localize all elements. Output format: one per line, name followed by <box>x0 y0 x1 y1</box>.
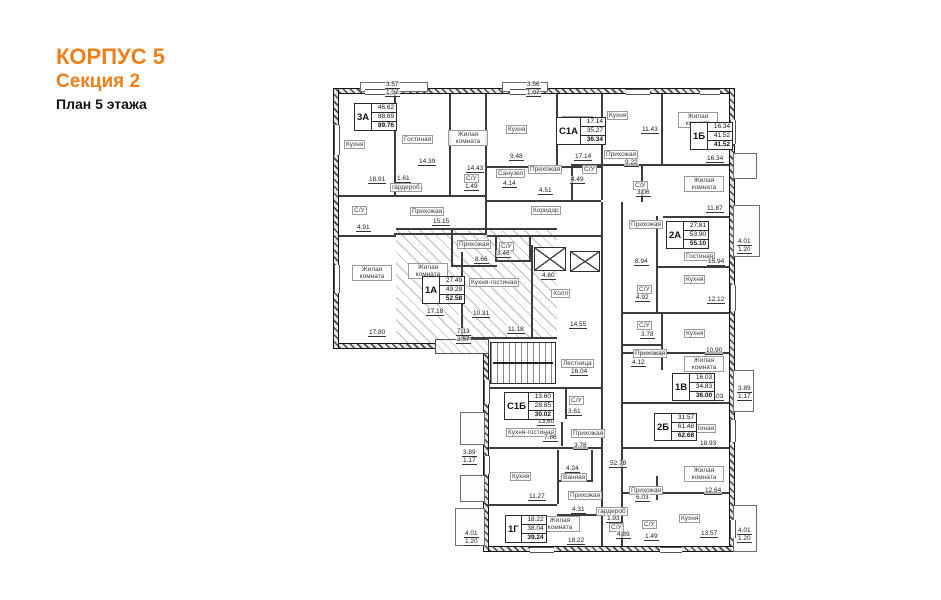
apartment-area-value: 17.14 <box>581 118 605 127</box>
room-area-dim: 3.06 <box>636 189 651 197</box>
interior-wall <box>661 314 663 370</box>
window <box>730 420 736 442</box>
dimension-label: 10.31 <box>472 310 490 318</box>
dimension-label: 3.56 <box>526 81 541 89</box>
apartment-code: 1А <box>423 277 440 303</box>
dimension-label: 1.17 <box>737 393 752 401</box>
stairs <box>490 342 556 384</box>
interior-wall <box>591 450 593 480</box>
interior-wall <box>656 216 658 312</box>
interior-wall <box>601 94 603 200</box>
room-area-dim: 11.43 <box>641 126 659 134</box>
room-area-dim: 13.57 <box>700 530 718 538</box>
room-label: С/У <box>569 396 584 405</box>
apartment-stamp: 2А27.8153.9055.10 <box>666 221 709 249</box>
room-label: Кухня-гостиная <box>469 278 519 287</box>
window <box>626 89 650 95</box>
dimension-label: 52.78 <box>609 460 627 468</box>
apartment-area-value: 61.48 <box>672 423 696 432</box>
apartment-area-value: 39.24 <box>522 534 546 542</box>
window <box>484 456 490 474</box>
room-area-dim: 1.93 <box>606 515 621 523</box>
room-area-dim: 4.14 <box>502 180 517 188</box>
apartment-area-value: 16.03 <box>690 374 714 383</box>
room-area-dim: 7.86 <box>543 434 558 442</box>
room-label: Жилая комната <box>352 265 392 281</box>
room-area-dim: 16.04 <box>570 368 588 376</box>
apartment-areas: 17.1435.2736.34 <box>581 118 605 144</box>
room-area-dim: 4.49 <box>570 176 585 184</box>
dimension-label: 4.01 <box>464 530 479 538</box>
window <box>530 547 554 553</box>
floor-title: План 5 этажа <box>56 94 165 114</box>
window <box>334 265 340 293</box>
room-label: Кухня <box>607 111 628 120</box>
dimension-label: 1.20 <box>737 246 752 254</box>
interior-wall <box>487 387 601 389</box>
interior-wall <box>661 94 663 164</box>
apartment-area-value: 49.29 <box>440 286 464 295</box>
dimension-label: 4.60 <box>541 272 556 280</box>
apartment-area-value: 18.22 <box>522 516 546 525</box>
room-label: Кухня <box>684 275 705 284</box>
room-label: Кухня <box>344 140 365 149</box>
apartment-stamp: С1Б13.6028.8530.02 <box>504 392 554 420</box>
dimension-label: 1.17 <box>462 457 477 465</box>
apartment-area-value: 89.76 <box>372 122 396 130</box>
room-area-dim: 10.90 <box>705 347 723 355</box>
stairs-rail <box>493 362 553 364</box>
room-area-dim: 3.78 <box>640 331 655 339</box>
balcony <box>460 412 485 445</box>
room-label: Прихожая <box>604 150 638 159</box>
interior-wall <box>623 344 661 346</box>
room-label: Лестница <box>561 359 594 368</box>
exterior-wall <box>483 546 735 552</box>
window <box>700 89 720 95</box>
apartment-code: 1В <box>673 374 690 400</box>
apartment-area-value: 28.85 <box>529 402 553 411</box>
dimension-label: 4.01 <box>737 238 752 246</box>
dimension-label: 1.07 <box>526 89 541 97</box>
apartment-areas: 27.8153.9055.10 <box>684 222 708 248</box>
room-area-dim: 4.51 <box>538 187 553 195</box>
dimension-label: 3.57 <box>385 81 400 89</box>
room-label: Прихожая <box>633 349 667 358</box>
room-area-dim: 1.49 <box>644 533 659 541</box>
room-label: гардероб <box>390 183 422 192</box>
dimension-label: 7.13 <box>456 328 471 336</box>
room-area-dim: 3.61 <box>567 408 582 416</box>
apartment-areas: 13.6028.8530.02 <box>529 393 553 419</box>
interior-wall <box>339 235 396 237</box>
apartment-stamp: 1Б16.3441.5241.52 <box>690 122 733 150</box>
room-area-dim: 18.22 <box>567 537 585 545</box>
room-area-dim: 14.55 <box>569 321 587 329</box>
apartment-areas: 16.3441.5241.52 <box>708 123 732 149</box>
apartment-stamp: С1А17.1435.2736.34 <box>556 117 606 145</box>
room-label: Жилая комната <box>684 356 724 372</box>
interior-wall <box>623 402 729 404</box>
apartment-areas: 16.0334.8336.00 <box>690 374 714 400</box>
dimension-label: 3.89 <box>462 449 477 457</box>
elevator-shaft <box>534 247 566 271</box>
room-area-dim: 9.48 <box>509 153 524 161</box>
apartment-area-value: 35.27 <box>581 127 605 136</box>
apartment-code: 3А <box>355 104 372 130</box>
apartment-stamp: 1В16.0334.8336.00 <box>672 373 715 401</box>
room-area-dim: 11.27 <box>528 493 546 501</box>
interior-wall <box>339 195 485 197</box>
room-label: Кухня <box>506 125 527 134</box>
apartment-area-value: 41.52 <box>708 132 732 141</box>
window <box>334 125 340 155</box>
room-area-dim: 17.80 <box>368 329 386 337</box>
apartment-area-value: 36.00 <box>690 392 714 400</box>
apartment-area-value: 41.52 <box>708 141 732 149</box>
room-label: С/У <box>464 174 479 183</box>
apartment-stamp: 3А46.6288.6989.76 <box>354 103 397 131</box>
apartment-area-value: 53.90 <box>684 231 708 240</box>
floor-plan: Кухня18.91Гостиная14.39Жилая комната14.4… <box>330 80 790 570</box>
room-area-dim: 16.34 <box>706 155 724 163</box>
apartment-stamp: 1Г18.2238.0439.24 <box>505 515 547 543</box>
interior-wall <box>557 450 559 504</box>
room-label: С/У <box>637 321 652 330</box>
room-area-dim: 8.94 <box>634 258 649 266</box>
room-label: Прихожая <box>629 220 663 229</box>
room-label: Кухня <box>510 472 531 481</box>
apartment-area-value: 36.34 <box>581 136 605 144</box>
apartment-area-value: 30.02 <box>529 411 553 419</box>
room-area-dim: 4.92 <box>635 294 650 302</box>
dimension-label: 1.07 <box>385 89 400 97</box>
apartment-code: 1Б <box>691 123 708 149</box>
room-area-dim: 1.61 <box>396 175 411 183</box>
room-label: Прихожая <box>457 240 491 249</box>
apartment-code: 2А <box>667 222 684 248</box>
elevator-shaft <box>570 251 600 272</box>
room-area-dim: 4.89 <box>616 531 631 539</box>
dimension-label: 4.01 <box>737 527 752 535</box>
apartment-area-value: 27.49 <box>440 277 464 286</box>
room-area-dim: 6.03 <box>635 494 650 502</box>
room-area-dim: 15.15 <box>432 218 450 226</box>
room-area-dim: 14.43 <box>466 165 484 173</box>
room-area-dim: 18.91 <box>368 176 386 184</box>
apartment-area-value: 55.10 <box>684 240 708 248</box>
room-label: С/У <box>582 165 597 174</box>
apartment-areas: 46.6288.6989.76 <box>372 104 396 130</box>
room-label: Кухня <box>684 329 705 338</box>
room-label: Жилая комната <box>448 130 488 146</box>
room-label: Прихожая <box>410 207 444 216</box>
apartment-area-value: 62.68 <box>672 432 696 440</box>
room-area-dim: 1.49 <box>464 183 479 191</box>
room-label: Коридор <box>531 206 561 215</box>
room-area-dim: 12.12 <box>707 296 725 304</box>
room-area-dim: 17.18 <box>426 308 444 316</box>
window <box>660 547 682 553</box>
title-block: КОРПУС 5 Секция 2 План 5 этажа <box>56 44 165 114</box>
apartment-areas: 31.5761.4862.68 <box>672 414 696 440</box>
room-area-dim: 4.12 <box>631 359 646 367</box>
apartment-area-value: 13.60 <box>529 393 553 402</box>
apartment-code: С1А <box>557 118 581 144</box>
page: { "title": { "building": "КОРПУС 5", "se… <box>0 0 941 600</box>
apartment-code: 1Г <box>506 516 522 542</box>
apartment-areas: 27.4949.2952.58 <box>440 277 464 303</box>
room-label: Прихожая <box>568 491 602 500</box>
apartment-code: С1Б <box>505 393 529 419</box>
interior-wall <box>658 266 729 268</box>
interior-wall <box>487 200 601 202</box>
room-area-dim: 11.18 <box>507 326 525 334</box>
room-label: Жилая комната <box>684 466 724 482</box>
room-label: Прихожая <box>528 165 562 174</box>
room-area-dim: 14.39 <box>418 158 436 166</box>
room-label: С/У <box>352 206 367 215</box>
room-area-dim: 11.87 <box>706 205 724 213</box>
dimension-label: 3.57 <box>456 336 471 344</box>
room-area-dim: 4.31 <box>571 506 586 514</box>
apartment-area-value: 52.58 <box>440 295 464 303</box>
room-area-dim: 8.66 <box>474 256 489 264</box>
room-area-dim: 12.64 <box>704 487 722 495</box>
dimension-label: 1.20 <box>737 535 752 543</box>
room-area-dim: 9.22 <box>624 159 639 167</box>
apartment-area-value: 16.34 <box>708 123 732 132</box>
apartment-area-value: 34.83 <box>690 383 714 392</box>
dimension-label: 1.20 <box>464 538 479 546</box>
room-label: С/У <box>642 520 657 529</box>
interior-wall <box>621 202 623 546</box>
interior-wall <box>561 422 563 446</box>
interior-wall <box>487 504 557 506</box>
room-area-dim: 4.24 <box>565 465 580 473</box>
balcony <box>733 153 757 179</box>
apartment-stamp: 2Б31.5761.4862.68 <box>654 413 697 441</box>
apartment-stamp: 1А27.4949.2952.58 <box>422 276 465 304</box>
apartment-area-value: 38.04 <box>522 525 546 534</box>
room-label: Жилая комната <box>684 176 724 192</box>
section-title: Секция 2 <box>56 70 165 94</box>
room-area-dim: 17.14 <box>574 153 592 161</box>
apartment-area-value: 27.81 <box>684 222 708 231</box>
room-area-dim: 15.94 <box>707 258 725 266</box>
room-label: Ванная <box>561 473 587 482</box>
apartment-areas: 18.2238.0439.24 <box>522 516 546 542</box>
building-title: КОРПУС 5 <box>56 44 165 70</box>
room-area-dim: 3.78 <box>573 442 588 450</box>
apartment-area-value: 88.69 <box>372 113 396 122</box>
room-area-dim: 3.46 <box>496 250 511 258</box>
window <box>730 520 736 538</box>
apartment-area-value: 46.62 <box>372 104 396 113</box>
interior-wall <box>623 312 729 314</box>
interior-wall <box>663 216 729 218</box>
interior-wall <box>571 166 573 202</box>
room-label: Холл <box>551 289 570 298</box>
dimension-label: 3.89 <box>737 385 752 393</box>
room-label: Кухня <box>679 514 700 523</box>
room-area-dim: 4.91 <box>356 224 371 232</box>
apartment-area-value: 31.57 <box>672 414 696 423</box>
room-label: Прихожая <box>571 429 605 438</box>
room-label: С/У <box>637 285 652 294</box>
room-area-dim: 18.93 <box>699 440 717 448</box>
apartment-code: 2Б <box>655 414 672 440</box>
room-label: Гостиная <box>402 135 433 144</box>
window <box>730 285 736 311</box>
room-label: Санузел <box>496 169 525 178</box>
interior-wall <box>485 94 487 234</box>
balcony <box>460 475 485 502</box>
